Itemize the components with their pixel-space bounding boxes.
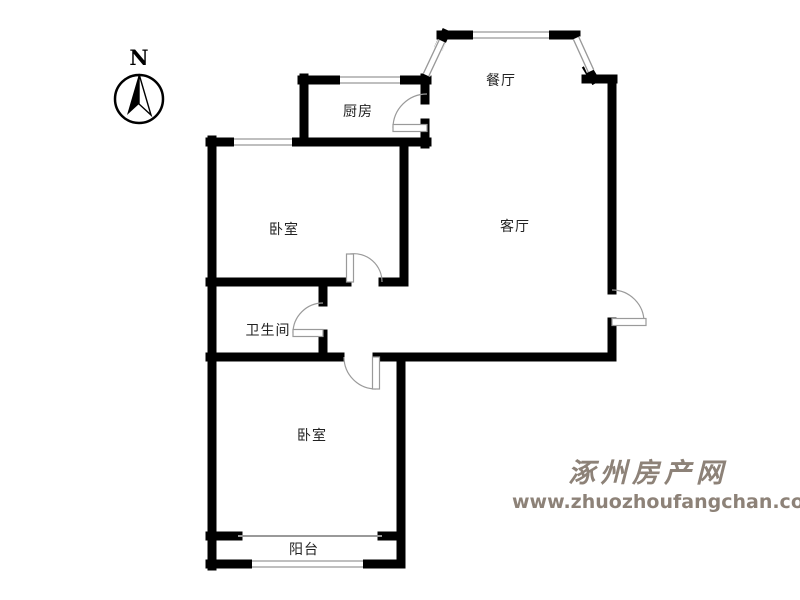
floor-plan-canvas: N 餐厅 厨房 卧室 客厅 卫生间 卧室 阳台 涿州房产网 www.zhuozh… <box>0 0 800 600</box>
door-bedroom1 <box>347 254 383 282</box>
door-bedroom2 <box>344 357 380 389</box>
window-kitchen <box>340 76 400 85</box>
room-label-living: 客厅 <box>500 216 530 236</box>
room-label-balcony: 阳台 <box>289 539 319 559</box>
compass-north-label: N <box>129 47 148 68</box>
watermark-site-name: 涿州房产网 <box>512 451 784 490</box>
door-entrance <box>612 290 646 326</box>
window-bay-left <box>423 40 444 77</box>
room-label-bedroom-1: 卧室 <box>269 219 299 239</box>
north-arrow-right-half <box>139 74 151 115</box>
window-bedroom1 <box>234 138 292 147</box>
room-label-dining: 餐厅 <box>486 70 516 90</box>
watermark-site-url: www.zhuozhoufangchan.com <box>512 491 784 513</box>
window-dining <box>473 31 549 40</box>
north-arrow-left-half <box>127 74 139 115</box>
room-label-kitchen: 厨房 <box>343 101 373 121</box>
door-bathroom <box>293 303 323 337</box>
room-label-bedroom-2: 卧室 <box>297 425 327 445</box>
compass-icon <box>115 74 163 123</box>
room-label-bathroom: 卫生间 <box>246 320 291 340</box>
window-balcony <box>252 560 363 569</box>
watermark: 涿州房产网 www.zhuozhoufangchan.com <box>512 451 784 513</box>
